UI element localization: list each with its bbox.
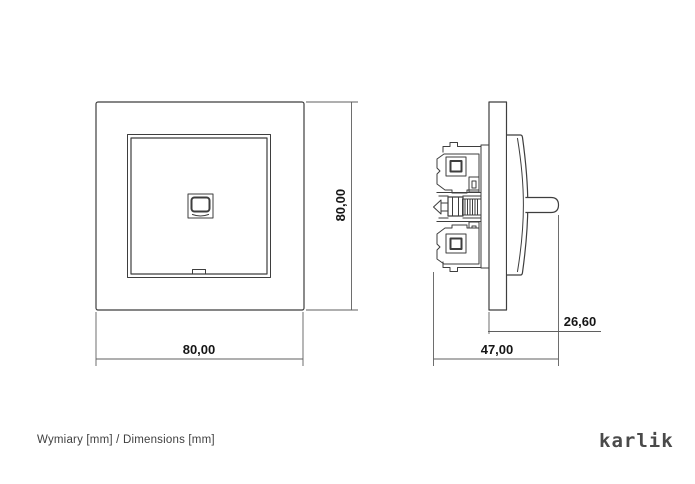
screw-shaft bbox=[441, 203, 448, 211]
screw-tip bbox=[434, 200, 442, 214]
drawing-canvas bbox=[0, 0, 695, 484]
mounting-flange bbox=[481, 145, 489, 268]
front-width-dimension: 80,00 bbox=[169, 343, 229, 357]
front-height-dimension: 80,00 bbox=[334, 183, 348, 227]
wall-plate-profile bbox=[489, 102, 507, 310]
mounting-claw-top bbox=[437, 154, 479, 193]
dimension-drawing: 80,00 80,00 47,00 26,60 Wymiary [mm] / D… bbox=[0, 0, 695, 484]
side-view bbox=[434, 102, 559, 310]
units-caption: Wymiary [mm] / Dimensions [mm] bbox=[37, 434, 215, 446]
brand-logo: karlik bbox=[599, 430, 674, 452]
claw-top-bar bbox=[443, 143, 481, 153]
toggle-lever bbox=[526, 198, 559, 213]
screw-clevis bbox=[448, 197, 463, 216]
front-view bbox=[96, 102, 304, 310]
side-protrusion-dimension: 26,60 bbox=[550, 315, 610, 329]
screw-threads bbox=[463, 199, 482, 215]
rocker-profile bbox=[507, 135, 528, 275]
expansion-screw bbox=[434, 197, 482, 216]
mounting-claw-bottom bbox=[437, 225, 479, 264]
side-depth-dimension: 47,00 bbox=[467, 343, 527, 357]
